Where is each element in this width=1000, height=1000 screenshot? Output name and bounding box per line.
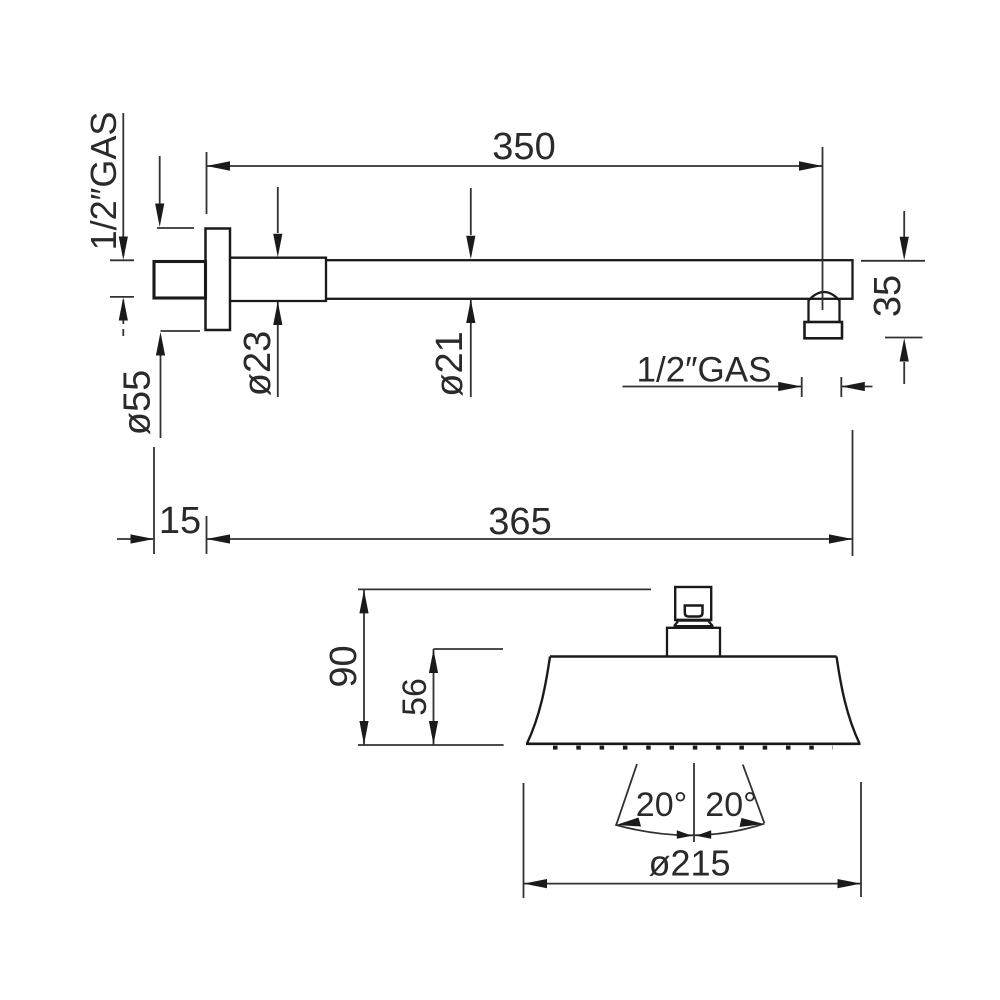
svg-text:ø215: ø215 [648, 843, 730, 884]
svg-text:ø21: ø21 [429, 331, 471, 396]
svg-text:ø55: ø55 [117, 370, 159, 435]
svg-text:20°: 20° [636, 786, 687, 824]
svg-text:1/2″GAS: 1/2″GAS [83, 112, 124, 251]
svg-text:35: 35 [867, 275, 909, 317]
svg-text:56: 56 [396, 678, 434, 716]
svg-text:20°: 20° [705, 786, 756, 824]
svg-text:365: 365 [488, 501, 551, 543]
svg-text:350: 350 [492, 126, 555, 168]
svg-text:1/2″GAS: 1/2″GAS [637, 351, 772, 390]
svg-text:ø23: ø23 [237, 331, 279, 396]
svg-text:90: 90 [323, 645, 365, 687]
svg-text:15: 15 [159, 500, 201, 542]
